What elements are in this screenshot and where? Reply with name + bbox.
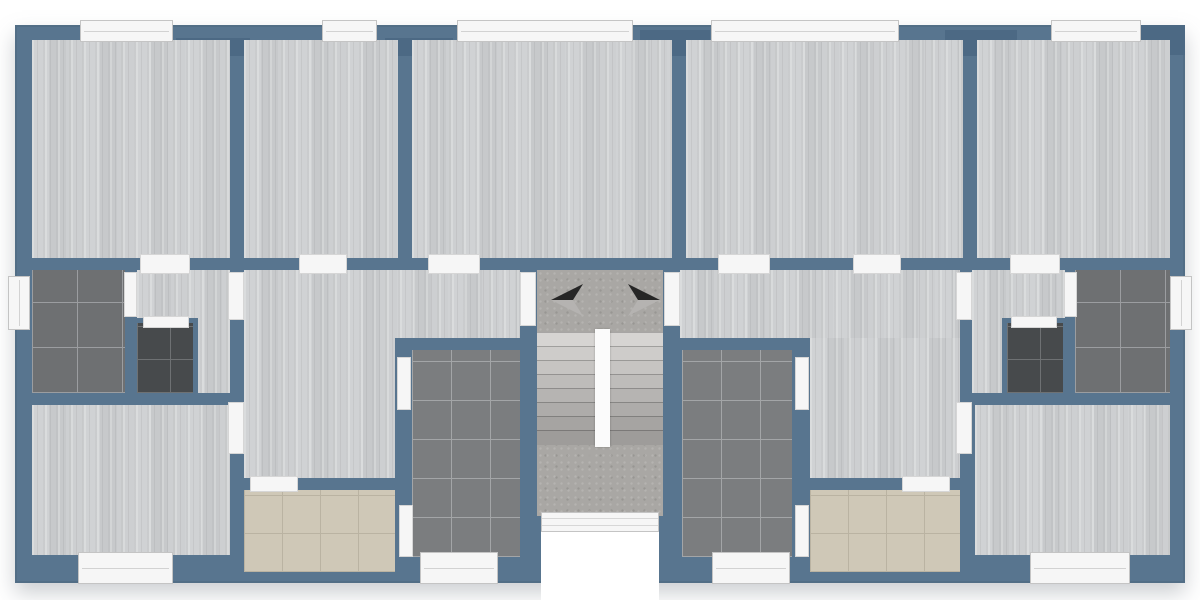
stair-divider	[595, 329, 610, 447]
window-bottom-bath-center-right	[712, 552, 790, 584]
hall-left-upper-floor	[244, 270, 520, 338]
stair-tread	[537, 346, 595, 361]
window-bottom-bath-center-left	[420, 552, 498, 584]
stair-tread	[537, 416, 595, 431]
window-top-4	[711, 20, 899, 42]
opening-room-top-3	[428, 254, 480, 274]
bathroom-center-right-floor	[682, 350, 792, 557]
room-bottom-left-floor	[32, 405, 230, 555]
door-bath-center-right-top	[795, 357, 809, 410]
stair-tread	[537, 388, 595, 403]
door-bathroom-left	[124, 272, 137, 317]
door-room-bottom-left	[228, 402, 244, 454]
opening-room-top-5	[853, 254, 901, 274]
window-top-2	[322, 20, 377, 42]
kitchen-left-floor	[244, 490, 395, 572]
entrance-porch	[541, 532, 659, 600]
room-bottom-right-floor	[975, 405, 1170, 555]
door-wc-left	[143, 316, 189, 328]
stair-tread	[537, 374, 595, 389]
door-bathroom-right	[1064, 272, 1077, 317]
window-top-1	[80, 20, 173, 42]
window-top-5	[1051, 20, 1141, 42]
floorplan-canvas	[0, 0, 1200, 600]
room-top-2-floor	[244, 40, 398, 258]
bathroom-center-left-floor	[412, 350, 520, 557]
kitchen-right-floor	[810, 490, 960, 572]
stair-tread	[610, 332, 663, 347]
stair-tread	[537, 360, 595, 375]
stair-arrow-right-icon	[628, 282, 660, 318]
opening-room-top-6	[1010, 254, 1060, 274]
stair-flight-right	[610, 332, 663, 444]
door-bath-center-left-bottom	[399, 505, 413, 557]
stair-arrow-left-icon	[551, 282, 583, 318]
door-apartment-right	[664, 272, 680, 326]
room-top-5-floor	[977, 40, 1170, 258]
opening-kitchen-left	[250, 476, 298, 492]
hall-right-upper-floor	[680, 270, 960, 338]
window-right-bathroom	[1170, 276, 1192, 330]
window-left-bathroom	[8, 276, 30, 330]
stair-tread	[610, 346, 663, 361]
hall-left-lower-floor	[244, 338, 395, 478]
stair-tread	[537, 402, 595, 417]
stair-tread	[610, 402, 663, 417]
room-top-1-floor	[32, 40, 230, 258]
stair-tread	[610, 374, 663, 389]
stair-tread	[610, 416, 663, 431]
opening-room-top-4	[718, 254, 770, 274]
door-corridor-left	[228, 272, 244, 320]
stair-tread	[537, 430, 595, 445]
stair-tread	[610, 388, 663, 403]
door-room-bottom-right	[956, 402, 972, 454]
stair-flight-left	[537, 332, 595, 444]
opening-kitchen-right	[902, 476, 950, 492]
hall-right-lower-floor	[810, 338, 960, 478]
window-bottom-room-right	[1030, 552, 1130, 584]
window-bottom-room-left	[78, 552, 173, 584]
entrance-door	[541, 512, 659, 532]
door-corridor-right	[956, 272, 972, 320]
door-apartment-left	[520, 272, 536, 326]
door-bath-center-left-top	[397, 357, 411, 410]
stair-tread	[537, 332, 595, 347]
room-top-3-floor	[412, 40, 672, 258]
room-top-4-floor	[686, 40, 963, 258]
bathroom-left-floor	[32, 270, 125, 393]
bathroom-right-floor	[1075, 270, 1170, 393]
wc-left-floor	[132, 318, 198, 398]
door-bath-center-right-bottom	[795, 505, 809, 557]
opening-room-top-2	[299, 254, 347, 274]
window-top-3	[457, 20, 633, 42]
wc-right-floor	[1002, 318, 1068, 398]
opening-room-top-1	[140, 254, 190, 274]
stair-tread	[610, 430, 663, 445]
door-wc-right	[1011, 316, 1057, 328]
stair-tread	[610, 360, 663, 375]
